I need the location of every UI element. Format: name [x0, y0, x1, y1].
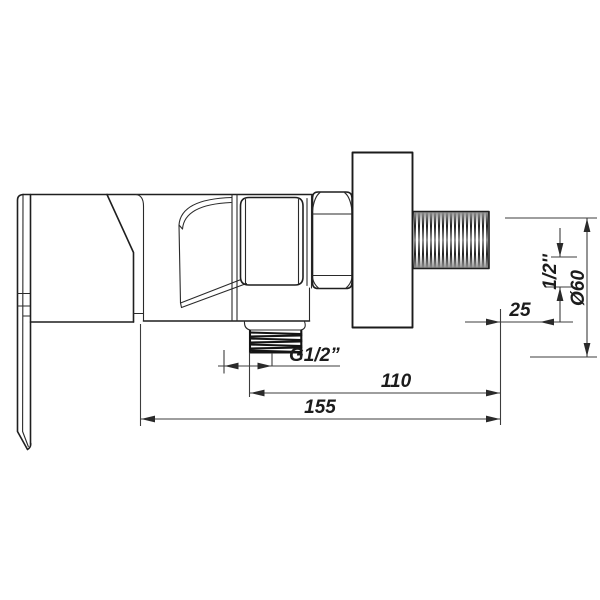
dim-155-label: 155	[304, 397, 336, 418]
dim-25: 25	[465, 300, 573, 325]
drawing-page: G1/2” 110 155 25 1/2''	[0, 0, 600, 600]
body-escutcheon	[23, 195, 313, 323]
diameter-label: Ø60	[568, 270, 589, 306]
dim-155: 155	[141, 309, 501, 426]
dim-110: 110	[250, 371, 500, 396]
valve-body	[144, 195, 310, 322]
hex-nut	[307, 192, 352, 289]
inlet-thread	[414, 212, 490, 269]
lever-handle	[18, 195, 31, 450]
dim-25-label: 25	[508, 300, 531, 321]
cartridge-box	[241, 198, 304, 286]
outlet-thread-label: G1/2”	[289, 345, 340, 366]
drawing-canvas: G1/2” 110 155 25 1/2''	[0, 0, 600, 600]
wall-flange	[353, 153, 413, 328]
inlet-thread-label: 1/2''	[540, 253, 561, 290]
dim-110-label: 110	[381, 371, 412, 392]
